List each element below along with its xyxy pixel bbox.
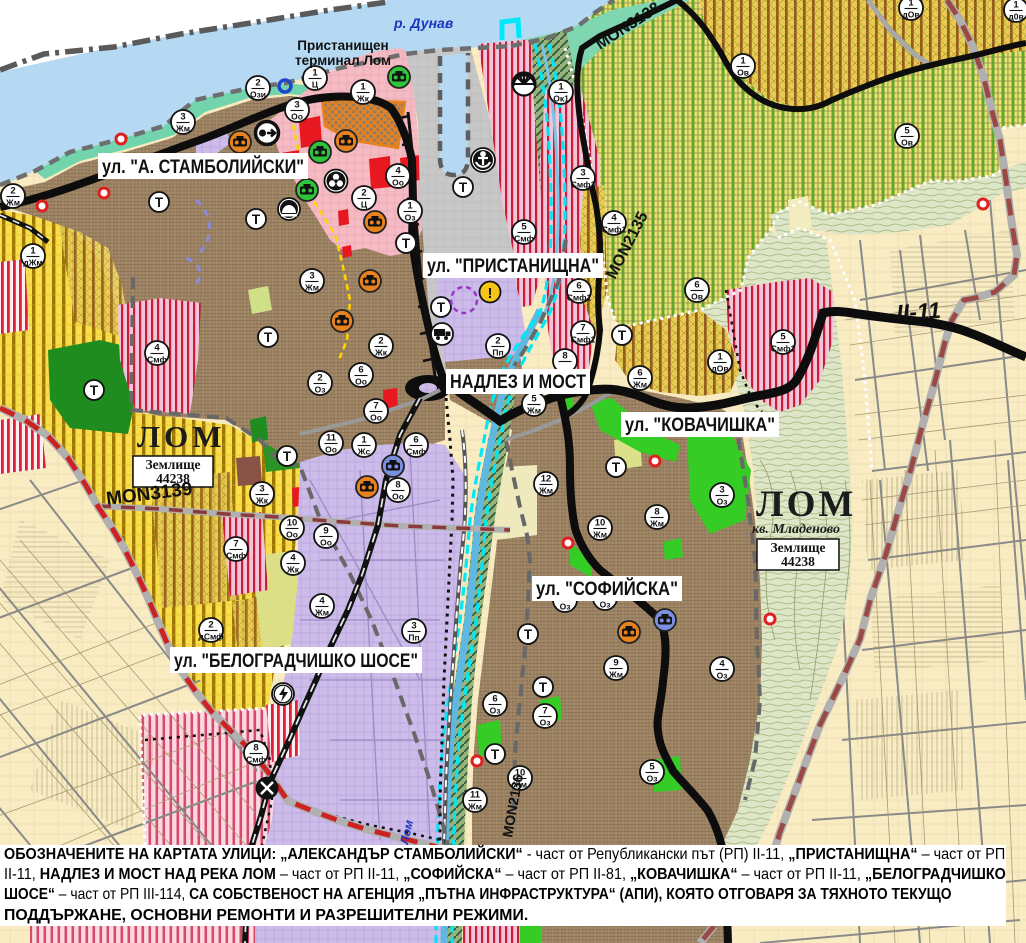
svg-text:7: 7 <box>233 539 238 550</box>
svg-text:5: 5 <box>904 126 910 137</box>
svg-text:3: 3 <box>580 168 585 179</box>
svg-text:Т: Т <box>459 180 468 195</box>
svg-text:8: 8 <box>654 507 659 518</box>
svg-text:Оо: Оо <box>355 377 367 387</box>
svg-text:Жм: Жм <box>538 486 553 496</box>
svg-text:4: 4 <box>319 596 325 607</box>
svg-text:дСмф: дСмф <box>198 632 224 642</box>
svg-text:ул. "СОФИЙСКА": ул. "СОФИЙСКА" <box>536 578 678 600</box>
svg-text:6: 6 <box>576 281 581 292</box>
svg-text:Землище: Землище <box>770 540 825 555</box>
svg-text:Жм: Жм <box>632 380 647 390</box>
svg-text:Землище: Землище <box>145 457 200 472</box>
svg-text:8: 8 <box>562 351 567 362</box>
svg-text:1: 1 <box>717 352 723 363</box>
svg-text:Ов: Ов <box>901 138 913 148</box>
svg-text:Т: Т <box>524 627 533 642</box>
svg-text:4: 4 <box>154 343 160 354</box>
svg-text:11: 11 <box>326 433 337 444</box>
svg-text:5: 5 <box>531 394 537 405</box>
svg-text:Жм: Жм <box>649 519 664 529</box>
svg-text:5: 5 <box>521 222 527 233</box>
svg-text:кв. Младеново: кв. Младеново <box>752 522 840 537</box>
svg-text:Т: Т <box>612 460 621 475</box>
svg-text:4: 4 <box>611 213 617 224</box>
svg-text:дОв: дОв <box>902 10 919 20</box>
svg-text:Т: Т <box>252 212 261 227</box>
svg-text:8: 8 <box>395 480 400 491</box>
svg-text:12: 12 <box>541 474 552 485</box>
svg-text:1: 1 <box>740 56 746 67</box>
svg-text:9: 9 <box>323 526 328 537</box>
svg-text:Смф: Смф <box>147 355 167 365</box>
svg-text:1: 1 <box>407 201 413 212</box>
svg-text:Ов: Ов <box>691 292 703 302</box>
svg-text:Пристанищен: Пристанищен <box>297 38 388 53</box>
svg-text:6: 6 <box>637 368 642 379</box>
svg-text:д0в: д0в <box>1008 12 1023 22</box>
svg-text:Оо: Оо <box>370 413 382 423</box>
svg-text:8: 8 <box>253 743 258 754</box>
svg-text:4: 4 <box>395 166 401 177</box>
svg-text:6: 6 <box>694 280 699 291</box>
svg-text:7: 7 <box>542 706 547 717</box>
svg-text:1: 1 <box>312 68 318 79</box>
svg-text:НАДЛЕЗ И МОСТ: НАДЛЕЗ И МОСТ <box>450 372 586 393</box>
svg-text:2: 2 <box>378 336 383 347</box>
svg-text:Т: Т <box>90 383 99 398</box>
svg-text:1: 1 <box>30 246 36 257</box>
svg-text:6: 6 <box>413 435 418 446</box>
svg-text:Т: Т <box>155 195 164 210</box>
svg-text:Оз: Оз <box>405 213 416 223</box>
svg-text:2: 2 <box>208 620 213 631</box>
svg-text:2: 2 <box>495 336 500 347</box>
svg-text:Оо: Оо <box>286 530 298 540</box>
svg-text:7: 7 <box>373 401 378 412</box>
svg-text:Ц: Ц <box>361 200 368 210</box>
svg-text:!: ! <box>488 285 493 302</box>
svg-text:Жм: Жм <box>304 283 319 293</box>
svg-text:ул. "БЕЛОГРАДЧИШКО ШОСЕ": ул. "БЕЛОГРАДЧИШКО ШОСЕ" <box>174 651 418 672</box>
svg-text:Оз: Оз <box>647 774 658 784</box>
svg-text:4: 4 <box>290 553 296 564</box>
svg-text:Оз: Оз <box>540 718 551 728</box>
svg-text:3: 3 <box>294 100 299 111</box>
svg-text:1: 1 <box>361 435 367 446</box>
svg-text:Оо: Оо <box>291 112 303 122</box>
svg-text:ЛОМ: ЛОМ <box>756 484 856 525</box>
svg-text:Оо: Оо <box>392 492 404 502</box>
svg-text:Жм: Жм <box>526 406 541 416</box>
svg-text:2: 2 <box>361 188 366 199</box>
svg-text:Жк: Жк <box>374 348 388 358</box>
svg-text:Смф1: Смф1 <box>567 293 592 303</box>
svg-text:Жк: Жк <box>356 94 370 104</box>
svg-text:6: 6 <box>358 365 363 376</box>
svg-text:Оз: Оз <box>560 602 571 612</box>
svg-text:Смф1: Смф1 <box>571 335 596 345</box>
svg-text:Т: Т <box>539 680 548 695</box>
svg-text:Смф: Смф <box>246 755 266 765</box>
svg-text:Жм: Жм <box>608 670 623 680</box>
svg-text:5: 5 <box>780 332 786 343</box>
svg-text:10: 10 <box>595 518 606 529</box>
svg-text:9: 9 <box>613 658 618 669</box>
svg-text:Пп: Пп <box>408 633 419 643</box>
svg-text:3: 3 <box>259 484 264 495</box>
svg-text:Смф: Смф <box>514 234 534 244</box>
svg-text:4: 4 <box>719 659 725 670</box>
svg-text:1: 1 <box>360 82 366 93</box>
svg-text:ЛОМ: ЛОМ <box>137 419 225 454</box>
svg-text:1: 1 <box>558 82 564 93</box>
svg-text:Смф: Смф <box>406 447 426 457</box>
svg-text:Оз: Оз <box>490 706 501 716</box>
svg-text:ул. "КОВАЧИШКА": ул. "КОВАЧИШКА" <box>625 415 775 436</box>
svg-text:6: 6 <box>492 694 497 705</box>
svg-text:Ок1: Ок1 <box>553 94 569 104</box>
svg-text:II-11: II-11 <box>896 297 942 326</box>
svg-text:2: 2 <box>317 373 322 384</box>
svg-text:Т: Т <box>618 328 627 343</box>
svg-text:7: 7 <box>580 323 585 334</box>
svg-text:11: 11 <box>470 790 481 801</box>
svg-text:ул. "А. СТАМБОЛИЙСКИ": ул. "А. СТАМБОЛИЙСКИ" <box>102 156 304 178</box>
svg-text:Т: Т <box>264 330 273 345</box>
svg-text:Оо: Оо <box>320 538 332 548</box>
svg-text:Т: Т <box>283 449 292 464</box>
svg-text:Т: Т <box>437 300 446 315</box>
svg-text:Жк: Жк <box>255 496 269 506</box>
svg-text:2: 2 <box>10 186 15 197</box>
svg-text:Ози: Ози <box>250 90 266 100</box>
svg-text:Жм: Жм <box>175 124 190 134</box>
svg-text:Жм: Жм <box>5 198 20 208</box>
svg-text:Оз: Оз <box>717 671 728 681</box>
svg-text:Жс: Жс <box>357 447 371 457</box>
svg-text:Жм: Жм <box>467 802 482 812</box>
svg-text:ул. "ПРИСТАНИЩНА": ул. "ПРИСТАНИЩНА" <box>427 256 599 277</box>
svg-text:Жм: Жм <box>592 530 607 540</box>
svg-text:Оо: Оо <box>392 178 404 188</box>
svg-text:дЖм: дЖм <box>23 258 42 268</box>
svg-text:Смф1: Смф1 <box>602 225 627 235</box>
svg-text:5: 5 <box>649 762 655 773</box>
svg-text:Жк: Жк <box>286 565 300 575</box>
svg-text:р. Дунав: р. Дунав <box>393 15 454 31</box>
svg-text:Смф: Смф <box>226 551 246 561</box>
svg-text:дОв: дОв <box>711 364 728 374</box>
svg-text:2: 2 <box>255 78 260 89</box>
svg-text:Ц: Ц <box>312 80 319 90</box>
svg-text:3: 3 <box>180 112 185 123</box>
svg-text:1: 1 <box>908 0 914 9</box>
svg-text:Ов: Ов <box>737 68 749 78</box>
svg-text:Смф1: Смф1 <box>571 180 596 190</box>
svg-text:44238: 44238 <box>781 554 815 569</box>
svg-text:Пп: Пп <box>492 348 503 358</box>
svg-text:3: 3 <box>411 621 416 632</box>
svg-text:3: 3 <box>719 485 724 496</box>
svg-text:3: 3 <box>309 271 314 282</box>
svg-text:терминал Лом: терминал Лом <box>295 53 391 68</box>
svg-text:Оз: Оз <box>315 385 326 395</box>
svg-text:Смф1: Смф1 <box>771 344 796 354</box>
svg-text:Т: Т <box>402 236 411 251</box>
svg-text:Оо: Оо <box>325 445 337 455</box>
svg-text:Жм: Жм <box>314 608 329 618</box>
svg-text:Оз: Оз <box>717 497 728 507</box>
svg-text:10: 10 <box>287 518 298 529</box>
svg-text:1: 1 <box>1013 0 1019 11</box>
svg-text:Т: Т <box>491 747 500 762</box>
